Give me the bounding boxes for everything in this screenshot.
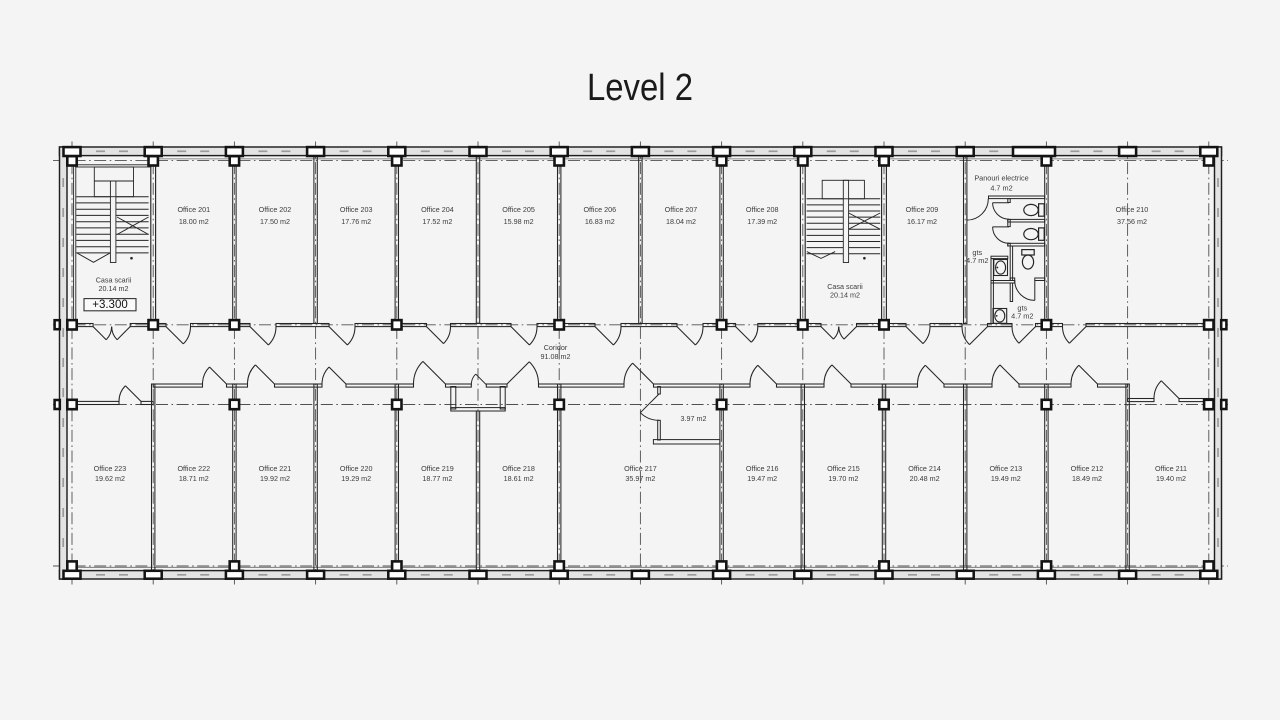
svg-text:+3.300: +3.300	[92, 299, 128, 311]
svg-text:Office 202: Office 202	[259, 205, 292, 214]
svg-text:19.29 m2: 19.29 m2	[341, 474, 371, 483]
svg-text:4.7 m2: 4.7 m2	[1011, 311, 1033, 320]
svg-text:Panouri electrice: Panouri electrice	[974, 174, 1028, 183]
svg-text:17.52 m2: 17.52 m2	[422, 217, 452, 226]
svg-text:4.7 m2: 4.7 m2	[990, 184, 1012, 193]
svg-text:Office 204: Office 204	[421, 205, 454, 214]
svg-text:17.76 m2: 17.76 m2	[341, 217, 371, 226]
svg-text:35.97 m2: 35.97 m2	[625, 474, 655, 483]
svg-text:18.00 m2: 18.00 m2	[179, 217, 209, 226]
svg-text:19.40 m2: 19.40 m2	[1156, 474, 1186, 483]
svg-text:18.77 m2: 18.77 m2	[422, 474, 452, 483]
svg-text:3.97 m2: 3.97 m2	[681, 414, 707, 423]
svg-text:Office 223: Office 223	[94, 464, 127, 473]
svg-text:Office 218: Office 218	[502, 464, 535, 473]
svg-text:Office 205: Office 205	[502, 205, 535, 214]
svg-text:Office 212: Office 212	[1071, 464, 1104, 473]
svg-text:20.48 m2: 20.48 m2	[910, 474, 940, 483]
svg-text:18.61 m2: 18.61 m2	[504, 474, 534, 483]
svg-text:37.56 m2: 37.56 m2	[1117, 217, 1147, 226]
svg-text:20.14 m2: 20.14 m2	[99, 284, 129, 293]
svg-text:Office 214: Office 214	[908, 464, 941, 473]
svg-text:Office 219: Office 219	[421, 464, 454, 473]
svg-text:19.49 m2: 19.49 m2	[991, 474, 1021, 483]
svg-text:Casa scarii: Casa scarii	[96, 275, 132, 284]
svg-text:Office 220: Office 220	[340, 464, 373, 473]
svg-text:16.83 m2: 16.83 m2	[585, 217, 615, 226]
svg-text:4.7 m2: 4.7 m2	[966, 256, 988, 265]
svg-text:Coridor: Coridor	[544, 343, 568, 352]
svg-text:Office 213: Office 213	[989, 464, 1022, 473]
svg-text:18.49 m2: 18.49 m2	[1072, 474, 1102, 483]
svg-text:18.71 m2: 18.71 m2	[179, 474, 209, 483]
svg-text:Office 207: Office 207	[665, 205, 698, 214]
svg-text:17.50 m2: 17.50 m2	[260, 217, 290, 226]
svg-text:20.14 m2: 20.14 m2	[830, 291, 860, 300]
svg-text:Office 216: Office 216	[746, 464, 779, 473]
svg-text:Office 221: Office 221	[259, 464, 292, 473]
svg-text:19.47 m2: 19.47 m2	[747, 474, 777, 483]
svg-text:Office 215: Office 215	[827, 464, 860, 473]
svg-text:Office 209: Office 209	[906, 205, 939, 214]
svg-text:17.39 m2: 17.39 m2	[747, 217, 777, 226]
svg-text:Office 210: Office 210	[1116, 205, 1149, 214]
svg-text:Office 222: Office 222	[177, 464, 210, 473]
svg-text:Office 201: Office 201	[177, 205, 210, 214]
svg-text:91.08 m2: 91.08 m2	[541, 352, 571, 361]
svg-text:18.04 m2: 18.04 m2	[666, 217, 696, 226]
svg-text:Office 208: Office 208	[746, 205, 779, 214]
svg-text:15.98 m2: 15.98 m2	[504, 217, 534, 226]
svg-text:16.17 m2: 16.17 m2	[907, 217, 937, 226]
svg-text:Office 206: Office 206	[583, 205, 616, 214]
svg-text:19.92 m2: 19.92 m2	[260, 474, 290, 483]
svg-text:19.70 m2: 19.70 m2	[828, 474, 858, 483]
svg-text:19.62 m2: 19.62 m2	[95, 474, 125, 483]
svg-text:Casa scarii: Casa scarii	[827, 282, 863, 291]
svg-text:Office 217: Office 217	[624, 464, 657, 473]
svg-text:Level 2: Level 2	[587, 67, 693, 109]
svg-text:Office 211: Office 211	[1155, 464, 1187, 473]
svg-text:Office 203: Office 203	[340, 205, 373, 214]
